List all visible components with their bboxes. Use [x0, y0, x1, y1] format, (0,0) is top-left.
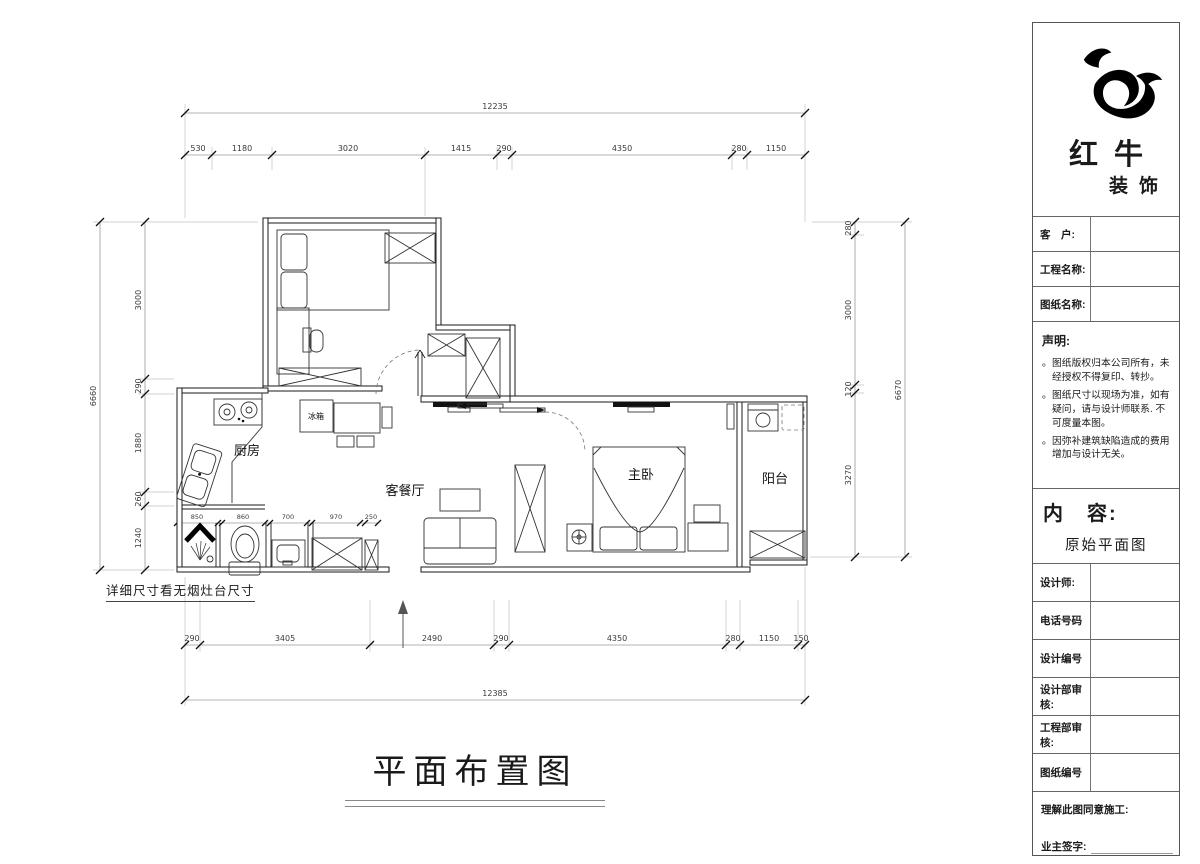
company-name-sub: 装饰 [1109, 171, 1169, 198]
dim-label: 260 [134, 491, 143, 506]
door-swing-arc [376, 350, 420, 394]
chair [382, 407, 392, 428]
pillow [281, 234, 307, 270]
field-phone: 电话号码 [1033, 602, 1179, 640]
field-design-review: 设计部审核: [1033, 678, 1179, 716]
dim-label: 4350 [612, 144, 632, 153]
cabinet-crossed-box [428, 334, 465, 356]
company-logo: 红牛 装饰 [1033, 23, 1179, 217]
dim-label: 4350 [607, 634, 627, 643]
title-block: 红牛 装饰 客 户: 工程名称: 图纸名称: 声明: 图纸版权归本公司所有，未经… [1032, 22, 1180, 856]
statement-heading: 声明: [1042, 332, 1173, 349]
chair [357, 436, 374, 447]
drawing-title-text: 平面布置图 [345, 744, 605, 793]
bed-master [593, 447, 685, 552]
nightstand-lamp [567, 524, 592, 551]
company-name: 红牛 [1033, 131, 1179, 173]
sofa [424, 518, 496, 564]
dim-label: 860 [237, 513, 249, 521]
room-label-kitchen: 厨房 [234, 443, 260, 459]
tv-media-box [628, 407, 654, 412]
content-section: 内 容: 原始平面图 [1033, 489, 1179, 564]
dresser [688, 523, 728, 551]
field-label: 客 户: [1033, 217, 1091, 251]
dim-left-total: 6660 [89, 386, 98, 406]
extension-lines [93, 104, 912, 706]
dim-label: 3000 [134, 290, 143, 310]
dim-label: 2490 [422, 634, 442, 643]
dim-label: 3020 [338, 144, 358, 153]
door-leaf-upper [415, 350, 425, 396]
dim-label: 150 [793, 634, 808, 643]
field-label: 电话号码 [1033, 602, 1091, 639]
cabinet-crossed-box [279, 368, 361, 386]
field-label: 设计编号 [1033, 640, 1091, 677]
dining-table [334, 403, 380, 433]
owner-signature-label: 业主签字: [1041, 839, 1087, 854]
field-label: 设计部审核: [1033, 678, 1091, 715]
dimension-ticks [96, 109, 909, 704]
dim-label: 3000 [844, 300, 853, 320]
kitchen-sink [176, 443, 222, 507]
bathroom-vanity [272, 540, 305, 567]
content-label: 内 容: [1043, 497, 1179, 526]
dim-label: 280 [844, 220, 853, 235]
dim-label: 3405 [275, 634, 295, 643]
walls [177, 218, 807, 572]
field-label: 工程部审核: [1033, 716, 1091, 753]
pillow [281, 272, 307, 308]
drawing-title: 平面布置图 [345, 744, 605, 807]
dim-label: 280 [725, 634, 740, 643]
stove-burners [219, 402, 257, 422]
content-value: 原始平面图 [1065, 534, 1179, 555]
dim-label: 250 [365, 513, 377, 521]
room-label-fridge: 冰箱 [308, 411, 324, 421]
dim-label: 1150 [759, 634, 779, 643]
dim-label: 700 [282, 513, 294, 521]
wardrobe-crossed-box [515, 465, 545, 552]
field-label: 工程名称: [1033, 252, 1091, 286]
dim-label: 1415 [451, 144, 471, 153]
field-project: 工程名称: [1033, 252, 1179, 287]
dim-label: 1880 [134, 433, 143, 453]
statement-item: 图纸版权归本公司所有，未经授权不得复印、转抄。 [1042, 357, 1173, 385]
dim-label: 120 [844, 381, 853, 396]
signature-section: 理解此图同意施工: 业主签字: [1033, 792, 1179, 855]
cabinet-crossed-box [750, 531, 805, 558]
desk [277, 308, 309, 374]
cabinet-crossed-box [365, 540, 378, 570]
door-swing-arc [545, 412, 585, 452]
furniture [176, 230, 805, 648]
wardrobe-crossed-box [385, 233, 435, 263]
entry-arrow [398, 600, 408, 648]
room-label-balcony: 阳台 [762, 472, 788, 487]
dim-label: 850 [191, 513, 203, 521]
chair [337, 436, 354, 447]
dim-label: 1180 [232, 144, 252, 153]
field-engineering-review: 工程部审核: [1033, 716, 1179, 754]
dim-bottom-total: 12385 [482, 689, 507, 698]
dresser-box [694, 505, 720, 522]
field-drawing: 图纸名称: [1033, 287, 1179, 322]
statement-section: 声明: 图纸版权归本公司所有，未经授权不得复印、转抄。 图纸尺寸以现场为准，如有… [1033, 322, 1179, 489]
dim-label: 280 [731, 144, 746, 153]
stove-counter [214, 399, 262, 425]
room-label-master: 主卧 [628, 468, 654, 483]
page: 12235 530 1180 3020 1415 290 4350 280 11… [0, 0, 1200, 864]
dim-label: 1150 [766, 144, 786, 153]
statement-item: 图纸尺寸以现场为准，如有疑问，请与设计师联系. 不可度量本图。 [1042, 389, 1173, 431]
logo-swoosh-icon [1055, 31, 1165, 136]
dim-label: 290 [493, 634, 508, 643]
dim-label: 970 [330, 513, 342, 521]
field-designer: 设计师: [1033, 564, 1179, 602]
dim-label: 290 [184, 634, 199, 643]
detail-note: 详细尺寸看无烟灶台尺寸 [106, 580, 255, 602]
title-underline [345, 800, 605, 801]
field-label: 设计师: [1033, 564, 1091, 601]
dashed-appliance [782, 405, 804, 430]
room-labels: 厨房 冰箱 客餐厅 主卧 阳台 [234, 411, 788, 499]
field-customer: 客 户: [1033, 217, 1179, 252]
dim-right-total: 6670 [894, 380, 903, 400]
cabinet-crossed-box [312, 538, 362, 570]
floor-plan-svg: 12235 530 1180 3020 1415 290 4350 280 11… [0, 0, 1030, 864]
dim-top-total: 12235 [482, 102, 507, 111]
title-underline [345, 806, 605, 807]
statement-item: 因弥补建筑缺陷造成的费用增加与设计无关。 [1042, 435, 1173, 463]
dim-label: 290 [134, 378, 143, 393]
dim-label: 3270 [844, 465, 853, 485]
field-label: 图纸编号 [1033, 754, 1091, 791]
cabinet-crossed-box [466, 338, 500, 398]
chair [310, 330, 323, 352]
door-chevron-marker [186, 526, 214, 541]
agreement-text: 理解此图同意施工: [1041, 802, 1173, 817]
field-label: 图纸名称: [1033, 287, 1091, 321]
coffee-table [440, 489, 480, 511]
dim-label: 1240 [134, 528, 143, 548]
field-drawing-number: 图纸编号 [1033, 754, 1179, 792]
tv-bedroom [613, 402, 670, 407]
field-design-number: 设计编号 [1033, 640, 1179, 678]
floor-drain [207, 556, 213, 562]
dim-label: 530 [190, 144, 205, 153]
wall-unit [727, 404, 734, 429]
signature-line[interactable] [1091, 841, 1174, 854]
room-label-living: 客餐厅 [385, 483, 424, 499]
washing-machine [748, 404, 778, 431]
dim-label: 290 [496, 144, 511, 153]
